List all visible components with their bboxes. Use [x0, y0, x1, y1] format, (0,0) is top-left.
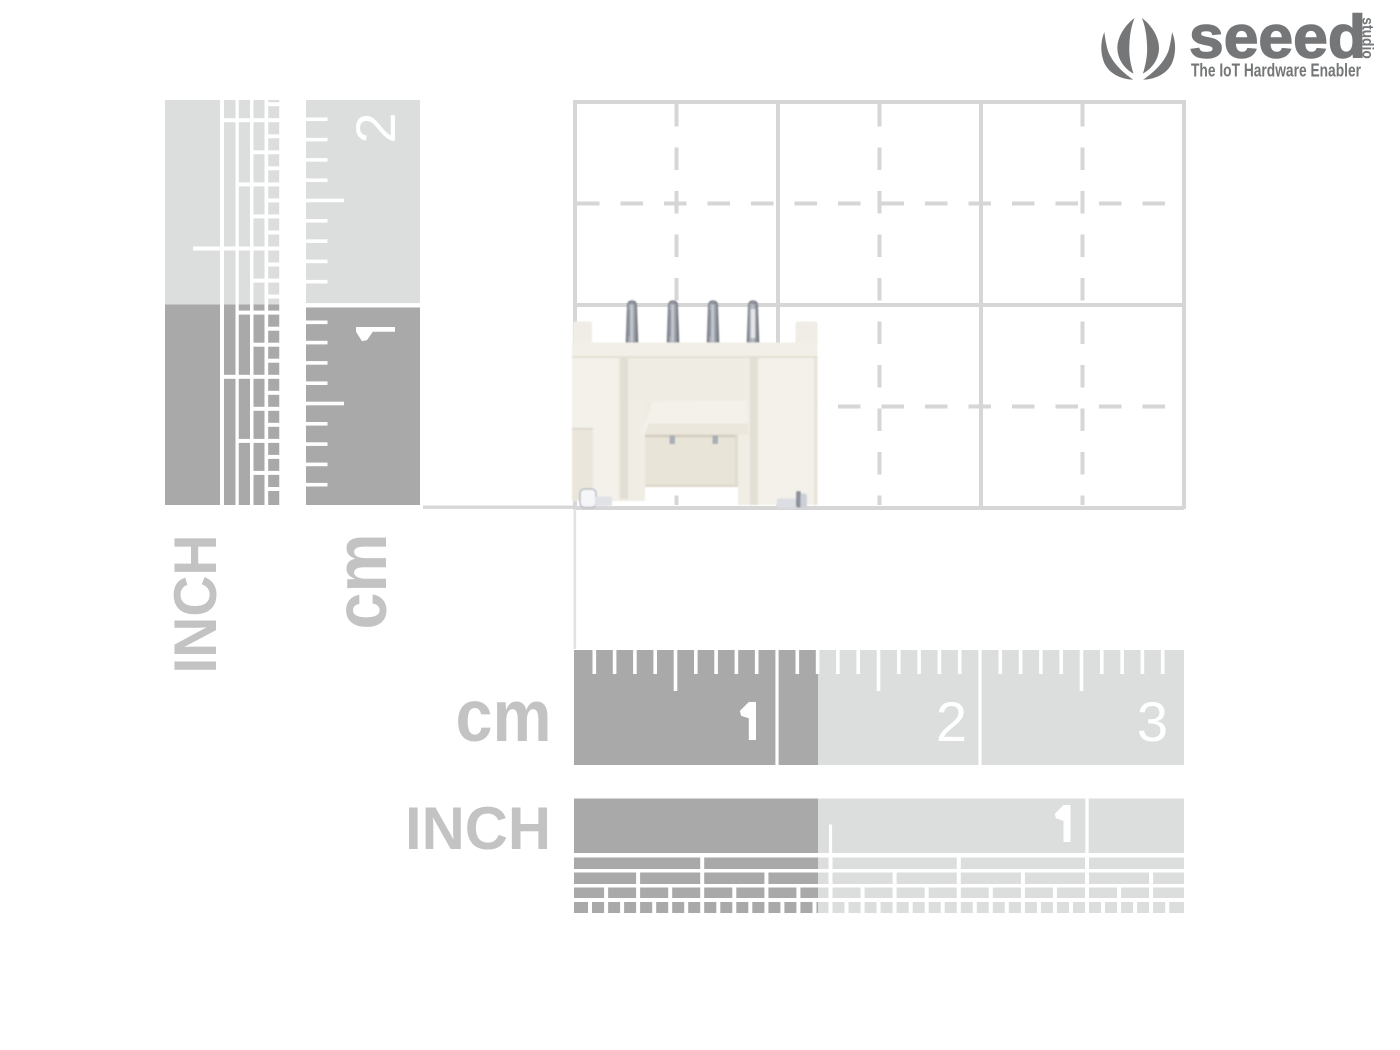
svg-text:cm: cm [456, 676, 552, 757]
svg-text:studio: studio [1359, 17, 1376, 59]
svg-text:INCH: INCH [162, 535, 229, 674]
svg-text:cm: cm [321, 534, 402, 630]
svg-text:The IoT Hardware Enabler: The IoT Hardware Enabler [1191, 60, 1361, 81]
svg-text:2: 2 [936, 690, 967, 753]
svg-text:3: 3 [1137, 690, 1168, 753]
svg-text:INCH: INCH [405, 795, 551, 862]
svg-text:2: 2 [344, 112, 407, 143]
